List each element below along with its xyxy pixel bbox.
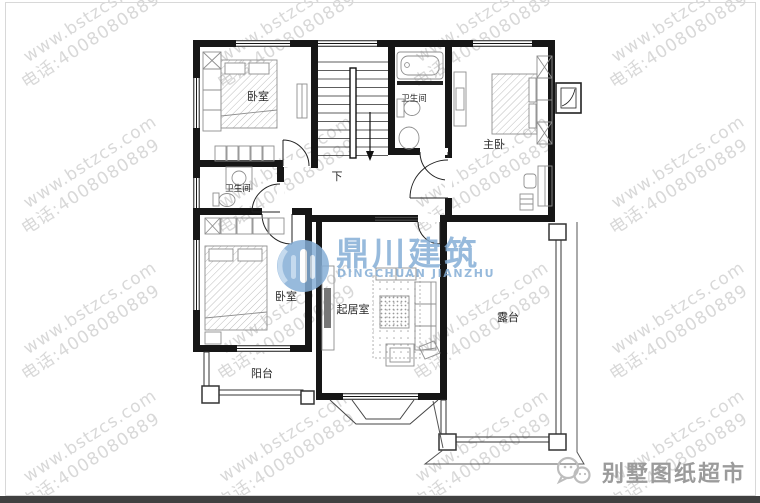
bay-window: [330, 400, 438, 424]
bedroom1-furniture: [203, 52, 307, 161]
staircase: [318, 62, 388, 161]
footer-brand: 别墅图纸超市: [554, 454, 746, 490]
room-label-bathroom-top: 卫生间: [401, 93, 427, 104]
bottom-bar: [0, 496, 760, 503]
room-label-bedroom-top-left: 卧室: [247, 89, 269, 103]
living-room-furniture: [322, 266, 440, 366]
room-label-living-room: 起居室: [337, 302, 370, 316]
logo-en-text: DINGCHUAN JIANZHU: [337, 267, 495, 280]
stair-down-label: 下: [332, 170, 343, 183]
room-label-master-bedroom: 主卧: [483, 138, 505, 151]
master-bedroom-furniture: [454, 56, 552, 210]
room-label-terrace: 露台: [497, 310, 519, 324]
page: www.bstzcs.com电话:4008080889www.bstzcs.co…: [0, 0, 760, 503]
dingchuan-logo-icon: [274, 237, 332, 295]
room-label-bathroom-middle: 卫生间: [225, 183, 251, 194]
flue-box: [556, 83, 581, 113]
chat-bubbles-icon: [554, 454, 594, 490]
room-label-balcony: 阳台: [251, 366, 273, 380]
footer-brand-text: 别墅图纸超市: [602, 456, 746, 488]
